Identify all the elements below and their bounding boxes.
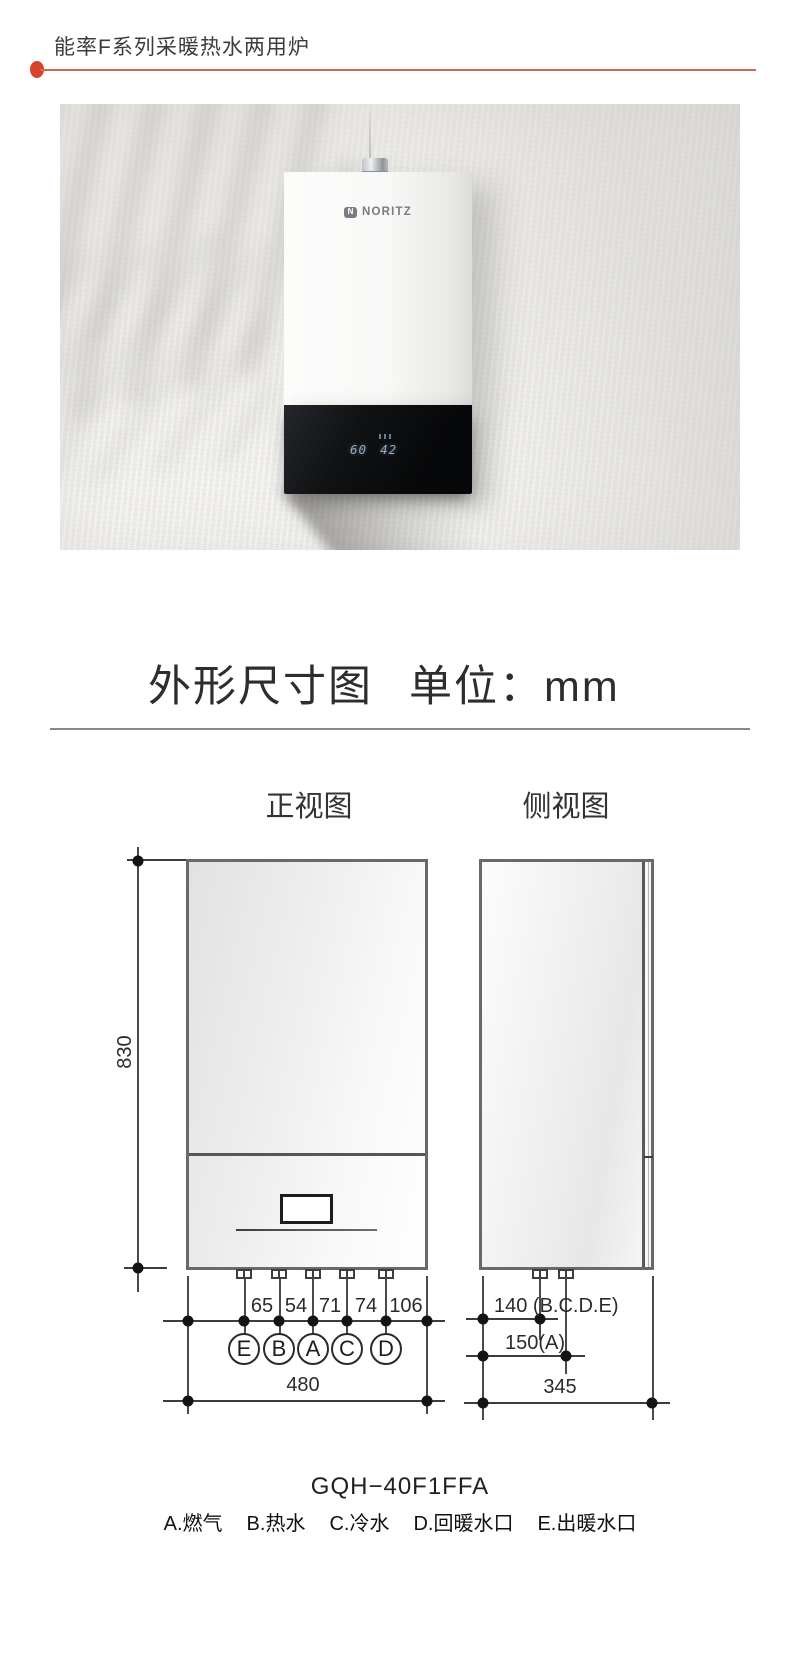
dim-label-bcde: 140 (B.C.D.E) bbox=[494, 1296, 618, 1316]
dim-dot bbox=[422, 1316, 433, 1327]
port-circle-c: C bbox=[331, 1333, 363, 1365]
dim-label-spacing: 65 bbox=[251, 1296, 273, 1316]
leaf-shadow-decoration bbox=[60, 228, 285, 489]
port-legend: A.燃气 B.热水 C.冷水 D.回暖水口 E.出暖水口 bbox=[0, 1507, 800, 1536]
boiler-body: N NORITZ bbox=[284, 172, 472, 405]
dim-line-height bbox=[137, 847, 139, 1292]
dim-dot bbox=[274, 1316, 285, 1327]
flue-pipe bbox=[369, 104, 371, 160]
display-status-icons bbox=[379, 434, 391, 439]
dim-label-height: 830 bbox=[115, 1022, 135, 1082]
dim-dot bbox=[133, 1263, 144, 1274]
product-photo: N NORITZ 60 42 bbox=[60, 104, 740, 550]
product-detail-page: 能率F系列采暖热水两用炉 N NORITZ 60 42 bbox=[0, 0, 800, 1663]
brand-name: NORITZ bbox=[362, 206, 412, 218]
dim-label-spacing: 71 bbox=[319, 1296, 341, 1316]
front-view-label: 正视图 bbox=[265, 783, 352, 825]
dim-dot bbox=[381, 1316, 392, 1327]
dim-label-depth: 345 bbox=[543, 1377, 576, 1397]
dim-dot bbox=[647, 1398, 658, 1409]
dim-dot bbox=[478, 1351, 489, 1362]
dim-dot bbox=[422, 1396, 433, 1407]
legend-item-b: B.热水 bbox=[247, 1507, 306, 1536]
dim-tick bbox=[124, 1267, 167, 1269]
dim-dot bbox=[308, 1316, 319, 1327]
strip-tick bbox=[644, 1156, 653, 1158]
dim-line-width bbox=[163, 1400, 445, 1402]
dim-dot bbox=[183, 1316, 194, 1327]
display-heating-temp: 60 bbox=[350, 442, 367, 457]
legend-item-a: A.燃气 bbox=[164, 1507, 223, 1536]
dim-line-spacings bbox=[163, 1320, 445, 1322]
dim-label-spacing: 74 bbox=[355, 1296, 377, 1316]
dim-dot bbox=[478, 1314, 489, 1325]
boiler-unit: N NORITZ 60 42 bbox=[284, 172, 472, 494]
port-circle-e: E bbox=[228, 1333, 260, 1365]
dim-label-width: 480 bbox=[286, 1375, 319, 1395]
side-view-label: 侧视图 bbox=[522, 783, 609, 825]
legend-item-d: D.回暖水口 bbox=[413, 1507, 513, 1536]
dim-label-spacing: 54 bbox=[285, 1296, 307, 1316]
extension-line bbox=[187, 1276, 189, 1414]
temperature-display: 60 42 bbox=[350, 442, 397, 457]
dim-dot bbox=[342, 1316, 353, 1327]
port-circle-b: B bbox=[263, 1333, 295, 1365]
display-hot-water-temp: 42 bbox=[380, 442, 397, 457]
extension-line bbox=[426, 1276, 428, 1414]
control-panel: 60 42 bbox=[284, 405, 472, 494]
front-display-underline bbox=[236, 1229, 377, 1231]
model-number: GQH−40F1FFA bbox=[0, 1473, 800, 1501]
unit-label: 单位：mm bbox=[409, 663, 620, 711]
side-mounting-strip bbox=[642, 862, 651, 1267]
section-title: 外形尺寸图单位：mm bbox=[148, 652, 620, 714]
front-display-outline bbox=[280, 1194, 333, 1224]
dim-dot bbox=[478, 1398, 489, 1409]
dim-label-a: 150(A) bbox=[505, 1333, 565, 1353]
section-divider bbox=[50, 728, 750, 730]
front-panel-divider-line bbox=[189, 1153, 425, 1156]
legend-item-c: C.冷水 bbox=[329, 1507, 389, 1536]
accent-divider bbox=[40, 69, 756, 71]
dim-dot bbox=[239, 1316, 250, 1327]
boiler-cast-shadow bbox=[286, 495, 563, 550]
noritz-logo-icon: N bbox=[344, 207, 357, 218]
brand-logo: N NORITZ bbox=[284, 206, 472, 218]
dim-line-depth bbox=[464, 1402, 670, 1404]
dim-dot bbox=[133, 856, 144, 867]
dim-dot bbox=[183, 1396, 194, 1407]
page-title: 能率F系列采暖热水两用炉 bbox=[54, 31, 310, 61]
legend-item-e: E.出暖水口 bbox=[537, 1507, 636, 1536]
port-circle-a: A bbox=[297, 1333, 329, 1365]
dimension-diagram-title: 外形尺寸图 bbox=[148, 663, 373, 711]
side-view-outline bbox=[479, 859, 654, 1270]
dim-label-spacing: 106 bbox=[389, 1296, 422, 1316]
flue-fitting bbox=[362, 158, 388, 173]
port-circle-d: D bbox=[370, 1333, 402, 1365]
